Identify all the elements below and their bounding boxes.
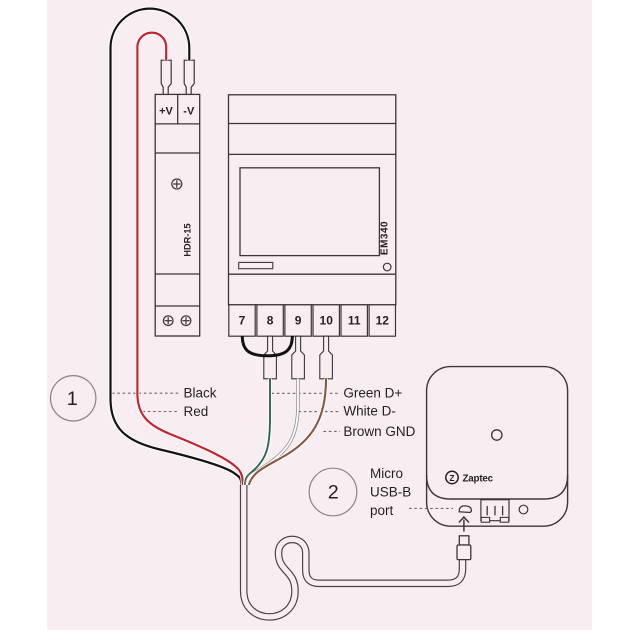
svg-text:10: 10 [320,314,334,328]
svg-text:EM340: EM340 [380,221,391,255]
svg-text:2: 2 [328,482,339,504]
svg-text:White D-: White D- [343,404,396,419]
svg-text:Z: Z [449,473,454,483]
svg-text:Green D+: Green D+ [343,386,402,401]
svg-text:port: port [370,503,394,518]
svg-text:Brown GND: Brown GND [343,424,415,439]
svg-text:1: 1 [67,388,78,410]
svg-text:8: 8 [267,314,274,328]
svg-text:Micro: Micro [370,466,403,481]
svg-text:7: 7 [239,314,246,328]
svg-text:Red: Red [184,404,209,419]
svg-text:-V: -V [183,106,195,118]
svg-text:12: 12 [376,314,390,328]
svg-text:+V: +V [159,106,173,118]
svg-text:Black: Black [184,386,217,401]
svg-text:Zaptec: Zaptec [463,473,494,484]
svg-text:USB-B: USB-B [370,485,411,500]
svg-text:HDR-15: HDR-15 [183,223,193,256]
svg-text:11: 11 [348,314,361,328]
svg-text:9: 9 [295,314,302,328]
